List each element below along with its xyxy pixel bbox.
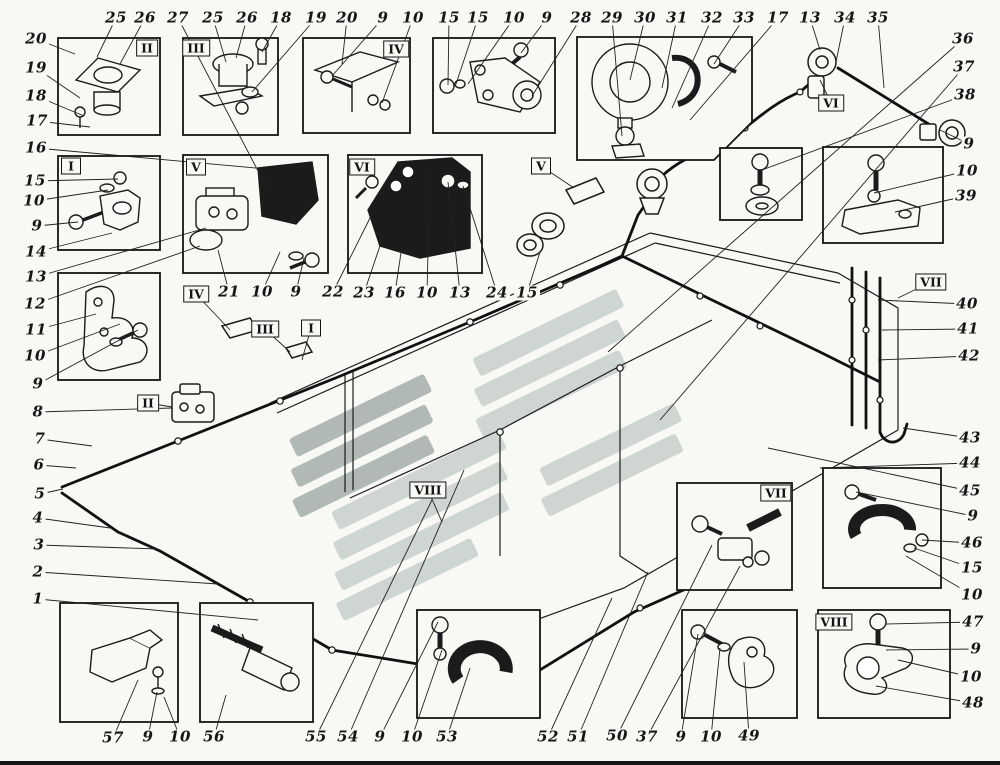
crossmember-bracket (222, 318, 312, 358)
leader-line (38, 572, 218, 584)
leader-line (39, 465, 76, 468)
leader-line (40, 439, 92, 446)
leader-line (882, 329, 968, 330)
brake-chambers (517, 213, 564, 256)
diagram-artwork (0, 0, 1000, 765)
leader-line (878, 300, 967, 304)
leader-line (898, 282, 931, 298)
right-horn (920, 120, 965, 146)
leader-line (903, 428, 970, 438)
leader-line (265, 329, 290, 352)
leader-line (196, 294, 230, 330)
leader-line (578, 572, 648, 737)
leader-line (40, 489, 63, 494)
leader-line (148, 403, 172, 407)
horn-bracket-top (808, 48, 836, 98)
silencer (566, 178, 604, 204)
leader-line (39, 545, 158, 549)
leader-line (878, 18, 884, 88)
bottom-rule (0, 761, 1000, 765)
leader-line (541, 166, 574, 188)
air-horn (637, 169, 667, 214)
leader-line (527, 252, 540, 293)
brake-valve-assembly (172, 384, 214, 422)
leader-line (810, 18, 820, 50)
leader-line (548, 598, 612, 737)
parts-diagram-page: 2526272526181920910151510928293031323317… (0, 0, 1000, 765)
leader-line (878, 356, 969, 360)
leader-line (836, 18, 845, 62)
leader-line (38, 408, 172, 412)
